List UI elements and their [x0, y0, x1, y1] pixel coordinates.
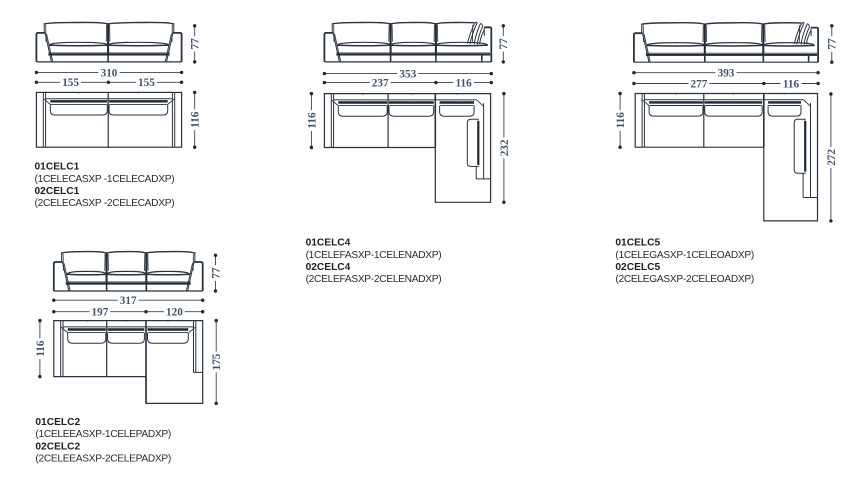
svg-text:272: 272 — [826, 149, 838, 166]
svg-text:232: 232 — [499, 139, 511, 156]
svg-text:(1CELEGASXP-1CELEOADXP): (1CELEGASXP-1CELEOADXP) — [615, 250, 754, 261]
svg-text:02CELC2: 02CELC2 — [35, 441, 80, 452]
svg-text:(2CELEGASXP-2CELEOADXP): (2CELEGASXP-2CELEOADXP) — [615, 274, 754, 285]
svg-text:175: 175 — [211, 353, 223, 370]
svg-text:116: 116 — [615, 112, 627, 129]
svg-text:393: 393 — [718, 68, 735, 80]
svg-text:02CELC1: 02CELC1 — [35, 186, 80, 197]
svg-text:77: 77 — [190, 38, 202, 50]
svg-text:116: 116 — [306, 112, 318, 129]
svg-text:01CELC5: 01CELC5 — [615, 238, 660, 249]
svg-text:116: 116 — [783, 78, 800, 90]
svg-text:197: 197 — [92, 307, 109, 319]
svg-text:77: 77 — [210, 267, 222, 279]
svg-text:02CELC5: 02CELC5 — [615, 262, 660, 273]
svg-text:116: 116 — [35, 340, 47, 357]
svg-text:(2CELECASXP -2CELECADXP): (2CELECASXP -2CELECADXP) — [35, 198, 175, 209]
svg-text:310: 310 — [101, 67, 118, 79]
svg-text:116: 116 — [190, 111, 202, 128]
svg-text:317: 317 — [120, 295, 137, 307]
svg-text:(1CELECASXP -1CELECADXP): (1CELECASXP -1CELECADXP) — [35, 174, 175, 185]
svg-text:01CELC4: 01CELC4 — [306, 238, 351, 249]
svg-text:(1CELEFASXP-1CELENADXP): (1CELEFASXP-1CELENADXP) — [306, 250, 442, 261]
svg-text:02CELC4: 02CELC4 — [306, 262, 351, 273]
svg-text:77: 77 — [827, 38, 839, 50]
svg-text:277: 277 — [691, 78, 708, 90]
svg-text:(2CELEEASXP-2CELEPADXP): (2CELEEASXP-2CELEPADXP) — [35, 453, 171, 464]
svg-text:155: 155 — [138, 77, 155, 89]
svg-text:(1CELEEASXP-1CELEPADXP): (1CELEEASXP-1CELEPADXP) — [35, 429, 171, 440]
svg-text:116: 116 — [456, 78, 473, 90]
svg-text:01CELC2: 01CELC2 — [35, 417, 80, 428]
svg-text:353: 353 — [399, 69, 416, 81]
svg-text:77: 77 — [498, 38, 510, 50]
svg-text:01CELC1: 01CELC1 — [35, 162, 80, 173]
svg-text:155: 155 — [62, 77, 79, 89]
svg-text:(2CELEFASXP-2CELENADXP): (2CELEFASXP-2CELENADXP) — [306, 274, 442, 285]
svg-text:237: 237 — [372, 78, 389, 90]
svg-text:120: 120 — [166, 307, 183, 319]
